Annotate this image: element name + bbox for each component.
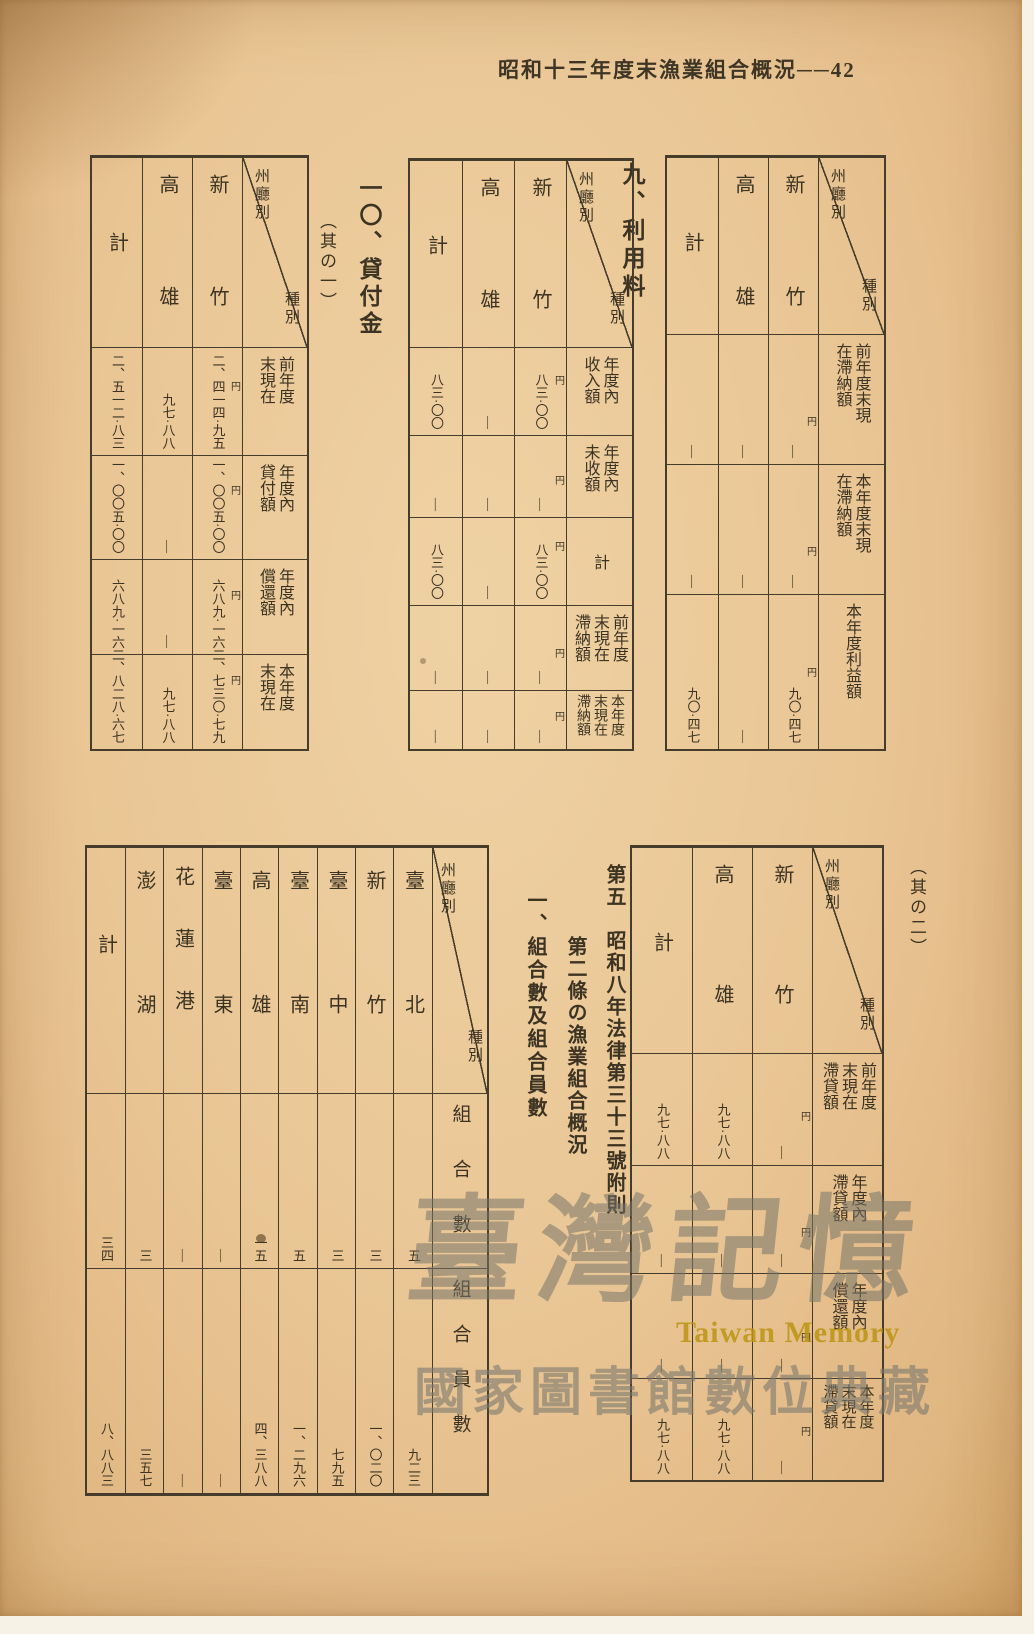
- table-cell: 三: [125, 1093, 163, 1268]
- table-cell: 円—: [514, 435, 566, 517]
- table-cell: 二、五一二·八三: [92, 347, 142, 455]
- diagonal-label-prefecture: 州廳別: [437, 862, 458, 916]
- cell-value: 七九五: [330, 1448, 344, 1487]
- table-cell: 計: [410, 161, 462, 347]
- table-cell: —: [410, 690, 462, 749]
- cell-value: —: [215, 1249, 229, 1262]
- diagonal-header-cell: 州廳別種別: [242, 158, 307, 347]
- cell-value: 二、七三〇·七九: [211, 648, 225, 743]
- heading-section5-sub: 一、組合數及組合員數: [521, 890, 550, 1120]
- row-label: 組合員數: [447, 1279, 474, 1459]
- table-cell: 臺南: [278, 848, 317, 1093]
- table-loans-part1: 計 高雄 新竹 州廳別種別 二、五一二·八三 九七·八八 円二、四一四·九五 前…: [90, 155, 309, 751]
- table-cell: 円—: [768, 334, 818, 464]
- cell-value: —: [534, 730, 548, 743]
- yen-mark: 円: [231, 487, 241, 497]
- row-label: 前年度末現在滯貸額: [819, 1062, 876, 1110]
- cell-value: —: [737, 445, 751, 458]
- row-label-cell: 本年度末現在滯納額: [818, 464, 884, 594]
- table-cell: 高雄: [142, 158, 192, 347]
- diagonal-header-cell: 州廳別種別: [432, 848, 487, 1093]
- cell-value: —: [215, 1474, 229, 1487]
- table-cell: 新竹: [514, 161, 566, 347]
- heading-section5-line1: 第五 昭和八年法律第三十三號附則: [600, 864, 629, 1216]
- cell-value: 三: [138, 1249, 152, 1262]
- table-cell: 計: [92, 158, 142, 347]
- table-cell: —: [163, 1093, 202, 1268]
- table-cell: 九七·八八: [142, 654, 192, 749]
- cell-value: 五: [406, 1249, 420, 1262]
- table-cell: —: [632, 1273, 692, 1378]
- yen-mark: 円: [801, 1113, 811, 1123]
- yen-mark: 円: [555, 477, 565, 487]
- table-cell: —: [718, 594, 768, 749]
- cell-value: —: [716, 1359, 730, 1372]
- cell-value: —: [655, 1359, 669, 1372]
- yen-mark: 円: [807, 418, 817, 428]
- cell-value: 六八九·一六: [110, 579, 124, 648]
- table-cell: 円九〇·四七: [768, 594, 818, 749]
- row-label-cell: 本年度末現在滯納額: [566, 690, 632, 749]
- table-cell: —: [142, 455, 192, 559]
- cell-value: 九七·八八: [716, 1418, 730, 1474]
- cell-value: 一、〇二〇: [368, 1422, 382, 1487]
- table-cell: 高雄: [718, 158, 768, 334]
- table-cell: 新竹: [192, 158, 242, 347]
- diagonal-label-kind: 種別: [281, 291, 302, 327]
- table-arrears-profit: 計 高雄 新竹 州廳別種別 — — 円— 前年度末現在滯納額 — — 円— 本年…: [665, 155, 886, 751]
- cell-value: —: [787, 575, 801, 588]
- table-cell: —: [667, 464, 718, 594]
- cell-value: 九七·八八: [161, 393, 175, 449]
- heading-loans: 一〇、貸付金: [351, 176, 385, 338]
- row-label: 年度內償還額: [829, 1282, 867, 1330]
- cell-value: —: [776, 1359, 790, 1372]
- table-cell: —: [462, 435, 514, 517]
- row-label: 前年度末現在: [256, 356, 294, 404]
- yen-mark: 円: [231, 383, 241, 393]
- cell-value: —: [686, 445, 700, 458]
- table-associations: 計 澎湖 花蓮港 臺東 高雄 臺南 臺中 新竹 臺北 州廳別種別 三四 三 — …: [85, 845, 489, 1496]
- table-cell: 高雄: [240, 848, 278, 1093]
- cell-value: 二、五一二·八三: [110, 354, 124, 449]
- yen-mark: 円: [555, 543, 565, 553]
- row-label-cell: 組合員數: [432, 1268, 487, 1493]
- row-label: 年度內償還額: [256, 568, 294, 616]
- table-cell: —: [632, 1165, 692, 1273]
- cell-value: 八、八八三: [99, 1422, 113, 1487]
- row-label: 年度內收入額: [581, 356, 619, 404]
- row-label: 本年度末現在滯貸額: [821, 1384, 875, 1429]
- heading-part-1: （其の一）: [314, 212, 339, 312]
- table-cell: 八三·〇〇: [410, 347, 462, 435]
- table-cell: 臺中: [317, 848, 355, 1093]
- table-loans-part2: 計 高雄 新竹 州廳別種別 九七·八八 九七·八八 円— 前年度末現在滯貸額 —…: [630, 845, 884, 1482]
- table-cell: 三四: [87, 1093, 125, 1268]
- cell-value: —: [482, 730, 496, 743]
- table-cell: 計: [667, 158, 718, 334]
- col-header-taihoku: 臺北: [399, 848, 428, 1115]
- col-header-shinchiku: 新竹: [768, 848, 797, 1069]
- cell-value: —: [161, 540, 175, 553]
- cell-value: 一、〇〇五·〇〇: [211, 458, 225, 553]
- table-cell: 三: [355, 1093, 393, 1268]
- yen-mark: 円: [231, 592, 241, 602]
- yen-mark: 円: [807, 548, 817, 558]
- table-cell: 円—: [752, 1378, 812, 1480]
- cell-value: 一五: [253, 1236, 267, 1262]
- table-cell: 九七·八八: [142, 347, 192, 455]
- table-cell: 円八三·〇〇: [514, 347, 566, 435]
- cell-value: —: [429, 498, 443, 511]
- cell-value: —: [655, 1254, 669, 1267]
- table-usage-fees: 計 高雄 新竹 州廳別種別 八三·〇〇 — 円八三·〇〇 年度內收入額 — — …: [408, 158, 634, 751]
- row-label-cell: 年度內貸付額: [242, 455, 307, 559]
- table-cell: 二、八二八·六七: [92, 654, 142, 749]
- table-cell: 円六八九·一六: [192, 559, 242, 654]
- table-cell: 円八三·〇〇: [514, 517, 566, 605]
- cell-value: —: [534, 671, 548, 684]
- cell-value: —: [176, 1474, 190, 1487]
- table-cell: 三五七: [125, 1268, 163, 1493]
- col-header-tainan: 臺南: [284, 848, 313, 1115]
- table-cell: 九七·八八: [692, 1053, 752, 1165]
- yen-mark: 円: [801, 1334, 811, 1344]
- table-cell: —: [718, 334, 768, 464]
- col-header-takao: 高雄: [153, 158, 182, 363]
- cell-value: 二、四一四·九五: [211, 354, 225, 449]
- cell-value: —: [716, 1254, 730, 1267]
- cell-value: 二、八二八·六七: [110, 648, 124, 743]
- yen-mark: 円: [807, 669, 817, 679]
- diagonal-header-cell: 州廳別種別: [818, 158, 884, 334]
- table-cell: 一、二九六: [278, 1268, 317, 1493]
- table-cell: —: [163, 1268, 202, 1493]
- table-cell: —: [462, 605, 514, 690]
- row-label: 年度內未收額: [581, 444, 619, 492]
- table-cell: 澎湖: [125, 848, 163, 1093]
- cell-value: —: [482, 586, 496, 599]
- row-label-cell: 計: [566, 517, 632, 605]
- table-cell: 円二、四一四·九五: [192, 347, 242, 455]
- cell-value: —: [776, 1461, 790, 1474]
- row-label-cell: 前年度末現在滯貸額: [812, 1053, 882, 1165]
- row-label-cell: 本年度末現在: [242, 654, 307, 749]
- heading-section5-line2: 第二條の漁業組合概況: [561, 936, 590, 1156]
- row-label-cell: 年度內收入額: [566, 347, 632, 435]
- cell-value: —: [737, 575, 751, 588]
- cell-value: 九七·八八: [161, 687, 175, 743]
- cell-value: 五: [291, 1249, 305, 1262]
- row-label-cell: 前年度末現在滯納額: [566, 605, 632, 690]
- col-header-shinchiku: 新竹: [526, 161, 555, 363]
- diagonal-label-kind: 種別: [464, 1029, 485, 1065]
- table-cell: 計: [87, 848, 125, 1093]
- table-cell: —: [462, 347, 514, 435]
- cell-value: —: [776, 1254, 790, 1267]
- table-cell: 九二三: [393, 1268, 432, 1493]
- scanned-document-page: 昭和十三年度末漁業組合概況──42 九、利用料 一〇、貸付金 （其の一） （其の…: [0, 0, 1034, 1634]
- table-cell: 五: [278, 1093, 317, 1268]
- diagonal-label-prefecture: 州廳別: [827, 168, 848, 222]
- row-label: 前年度末現在滯納額: [833, 343, 871, 423]
- diagonal-header-cell: 州廳別種別: [812, 848, 882, 1053]
- col-header-takao: 高雄: [245, 848, 274, 1115]
- table-cell: 八、八八三: [87, 1268, 125, 1493]
- col-header-takao: 高雄: [729, 158, 758, 350]
- cell-value: 一、〇〇五·〇〇: [110, 458, 124, 553]
- table-cell: —: [142, 559, 192, 654]
- table-cell: 五: [393, 1093, 432, 1268]
- cell-value: —: [776, 1146, 790, 1159]
- table-cell: 九〇·四七: [667, 594, 718, 749]
- row-label: 組合數: [447, 1104, 474, 1269]
- row-label-cell: 年度內償還額: [242, 559, 307, 654]
- row-label-cell: 年度內滯貸額: [812, 1165, 882, 1273]
- table-cell: —: [202, 1093, 240, 1268]
- table-cell: —: [202, 1268, 240, 1493]
- col-header-takao: 高雄: [474, 161, 503, 363]
- cell-value: —: [787, 445, 801, 458]
- table-cell: 円—: [514, 605, 566, 690]
- col-header-karenko: 花蓮港: [169, 848, 198, 1111]
- cell-value: —: [161, 635, 175, 648]
- diagonal-label-kind: 種別: [858, 278, 879, 314]
- table-cell: 九七·八八: [632, 1378, 692, 1480]
- col-header-hoko: 澎湖: [130, 848, 159, 1115]
- cell-value: —: [482, 671, 496, 684]
- diagonal-label-kind: 種別: [606, 291, 627, 327]
- col-header-takao: 高雄: [708, 848, 737, 1069]
- col-header-taito: 臺東: [207, 848, 236, 1115]
- table-cell: 円—: [514, 690, 566, 749]
- cell-value: —: [737, 730, 751, 743]
- cell-value: 八三·〇〇: [429, 373, 443, 429]
- yen-mark: 円: [231, 677, 241, 687]
- row-label: 前年度末現在滯納額: [571, 614, 628, 662]
- table-cell: —: [410, 605, 462, 690]
- table-cell: 新竹: [752, 848, 812, 1053]
- row-label: 年度內貸付額: [256, 464, 294, 512]
- row-label: 本年度末現在滯納額: [833, 473, 871, 553]
- table-cell: —: [462, 517, 514, 605]
- yen-mark: 円: [555, 377, 565, 387]
- table-cell: 計: [632, 848, 692, 1053]
- table-cell: 円—: [752, 1053, 812, 1165]
- table-cell: —: [692, 1165, 752, 1273]
- row-label: 年度內滯貸額: [829, 1174, 867, 1222]
- table-cell: —: [462, 690, 514, 749]
- table-cell: 円二、七三〇·七九: [192, 654, 242, 749]
- table-cell: 円—: [752, 1165, 812, 1273]
- table-cell: 九七·八八: [632, 1053, 692, 1165]
- cell-value: —: [686, 575, 700, 588]
- col-header-taichu: 臺中: [322, 848, 351, 1115]
- table-cell: 臺北: [393, 848, 432, 1093]
- cell-value: 八三·〇〇: [534, 373, 548, 429]
- table-cell: 臺東: [202, 848, 240, 1093]
- row-label-cell: 前年度末現在: [242, 347, 307, 455]
- cell-value: 三: [368, 1249, 382, 1262]
- table-cell: —: [718, 464, 768, 594]
- cell-value: 九七·八八: [655, 1103, 669, 1159]
- table-cell: —: [692, 1273, 752, 1378]
- cell-value: 九七·八八: [655, 1418, 669, 1474]
- col-header-shinchiku: 新竹: [360, 848, 389, 1115]
- cell-value: 三: [330, 1249, 344, 1262]
- table-cell: 花蓮港: [163, 848, 202, 1093]
- row-label-cell: 年度內未收額: [566, 435, 632, 517]
- cell-value: 三四: [99, 1236, 113, 1262]
- cell-value: 三五七: [138, 1448, 152, 1487]
- row-label: 計: [590, 554, 609, 570]
- table-cell: 一、〇〇五·〇〇: [92, 455, 142, 559]
- cell-value: 四、三八八: [253, 1422, 267, 1487]
- page-header: 昭和十三年度末漁業組合概況──42: [498, 54, 878, 84]
- row-label: 本年度末現在: [256, 663, 294, 711]
- col-header-shinchiku: 新竹: [779, 158, 808, 350]
- table-cell: 一五: [240, 1093, 278, 1268]
- cell-value: 九二三: [406, 1448, 420, 1487]
- table-cell: —: [410, 435, 462, 517]
- table-cell: 四、三八八: [240, 1268, 278, 1493]
- cell-value: —: [534, 498, 548, 511]
- table-cell: 七九五: [317, 1268, 355, 1493]
- row-label: 本年度利益額: [842, 603, 861, 699]
- heading-part-2: （其の二）: [904, 858, 929, 958]
- table-cell: 九七·八八: [692, 1378, 752, 1480]
- table-cell: 一、〇二〇: [355, 1268, 393, 1493]
- cell-value: 九七·八八: [716, 1103, 730, 1159]
- table-cell: 高雄: [692, 848, 752, 1053]
- yen-mark: 円: [801, 1229, 811, 1239]
- row-label-cell: 本年度利益額: [818, 594, 884, 749]
- table-cell: 円一、〇〇五·〇〇: [192, 455, 242, 559]
- table-cell: 円—: [752, 1273, 812, 1378]
- cell-value: —: [429, 730, 443, 743]
- paper-background: 昭和十三年度末漁業組合概況──42 九、利用料 一〇、貸付金 （其の一） （其の…: [0, 0, 1022, 1616]
- cell-value: 九〇·四七: [686, 687, 700, 743]
- row-label-cell: 前年度末現在滯納額: [818, 334, 884, 464]
- cell-value: 六八九·一六: [211, 579, 225, 648]
- yen-mark: 円: [555, 713, 565, 723]
- row-label: 本年度末現在滯納額: [574, 694, 625, 736]
- diagonal-header-cell: 州廳別種別: [566, 161, 632, 347]
- table-cell: 新竹: [355, 848, 393, 1093]
- diagonal-label-prefecture: 州廳別: [821, 858, 842, 912]
- table-cell: 円—: [768, 464, 818, 594]
- table-cell: 新竹: [768, 158, 818, 334]
- table-cell: —: [667, 334, 718, 464]
- cell-value: 一、二九六: [291, 1422, 305, 1487]
- row-label-cell: 本年度末現在滯貸額: [812, 1378, 882, 1480]
- diagonal-label-kind: 種別: [856, 997, 877, 1033]
- cell-value: —: [429, 671, 443, 684]
- table-cell: 八三·〇〇: [410, 517, 462, 605]
- yen-mark: 円: [555, 650, 565, 660]
- table-cell: 高雄: [462, 161, 514, 347]
- cell-value: 八三·〇〇: [429, 543, 443, 599]
- cell-value: 八三·〇〇: [534, 543, 548, 599]
- cell-value: —: [176, 1249, 190, 1262]
- cell-value: 九〇·四七: [787, 687, 801, 743]
- row-label-cell: 組合數: [432, 1093, 487, 1268]
- table-cell: 三: [317, 1093, 355, 1268]
- yen-mark: 円: [801, 1428, 811, 1438]
- cell-value: —: [482, 498, 496, 511]
- cell-value: —: [482, 416, 496, 429]
- row-label-cell: 年度內償還額: [812, 1273, 882, 1378]
- diagonal-label-prefecture: 州廳別: [575, 171, 596, 225]
- diagonal-label-prefecture: 州廳別: [251, 168, 272, 222]
- col-header-shinchiku: 新竹: [203, 158, 232, 363]
- table-cell: 六八九·一六: [92, 559, 142, 654]
